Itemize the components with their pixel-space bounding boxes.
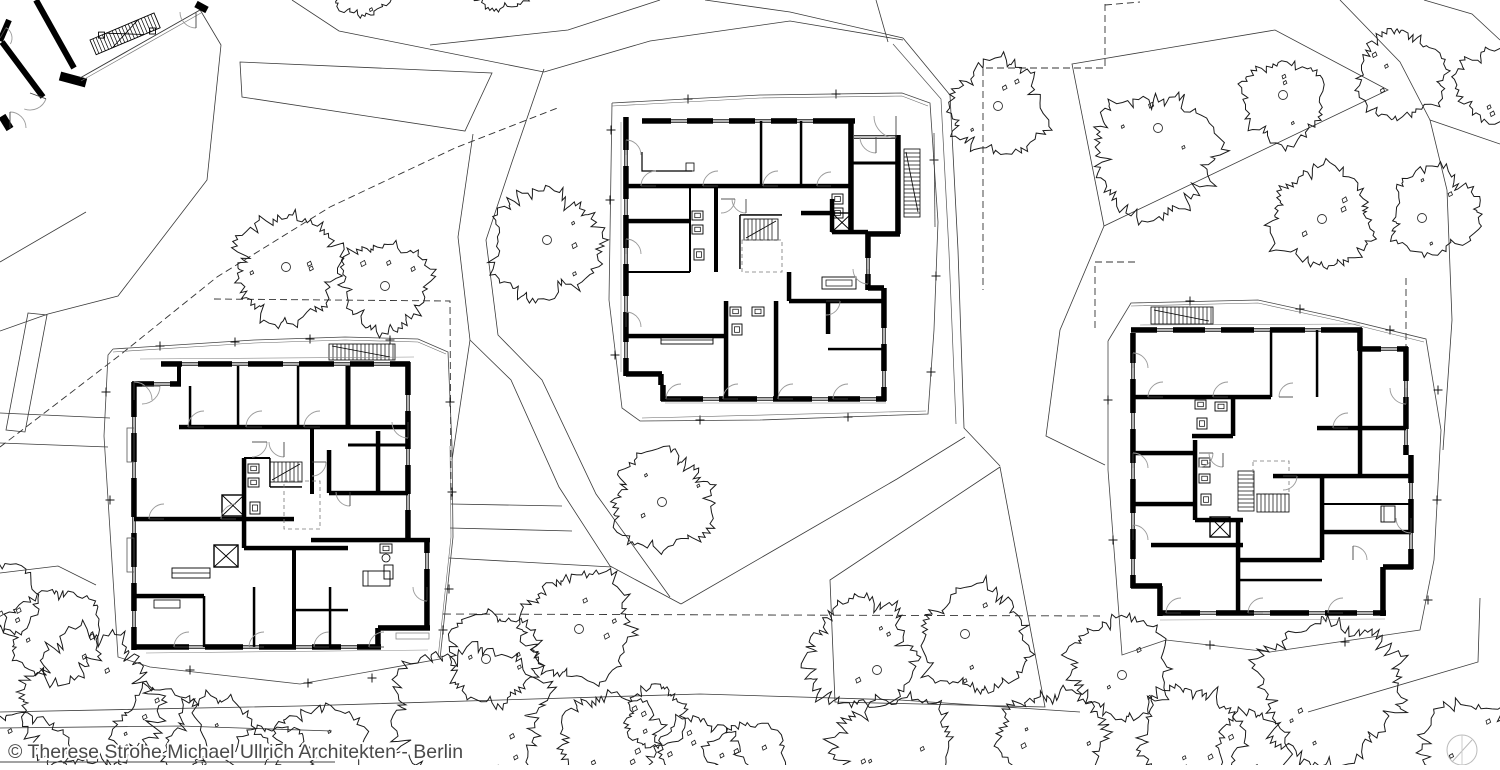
svg-text:© Therese Strohe Michael Ullri: © Therese Strohe Michael Ullrich Archite… [8, 741, 463, 763]
